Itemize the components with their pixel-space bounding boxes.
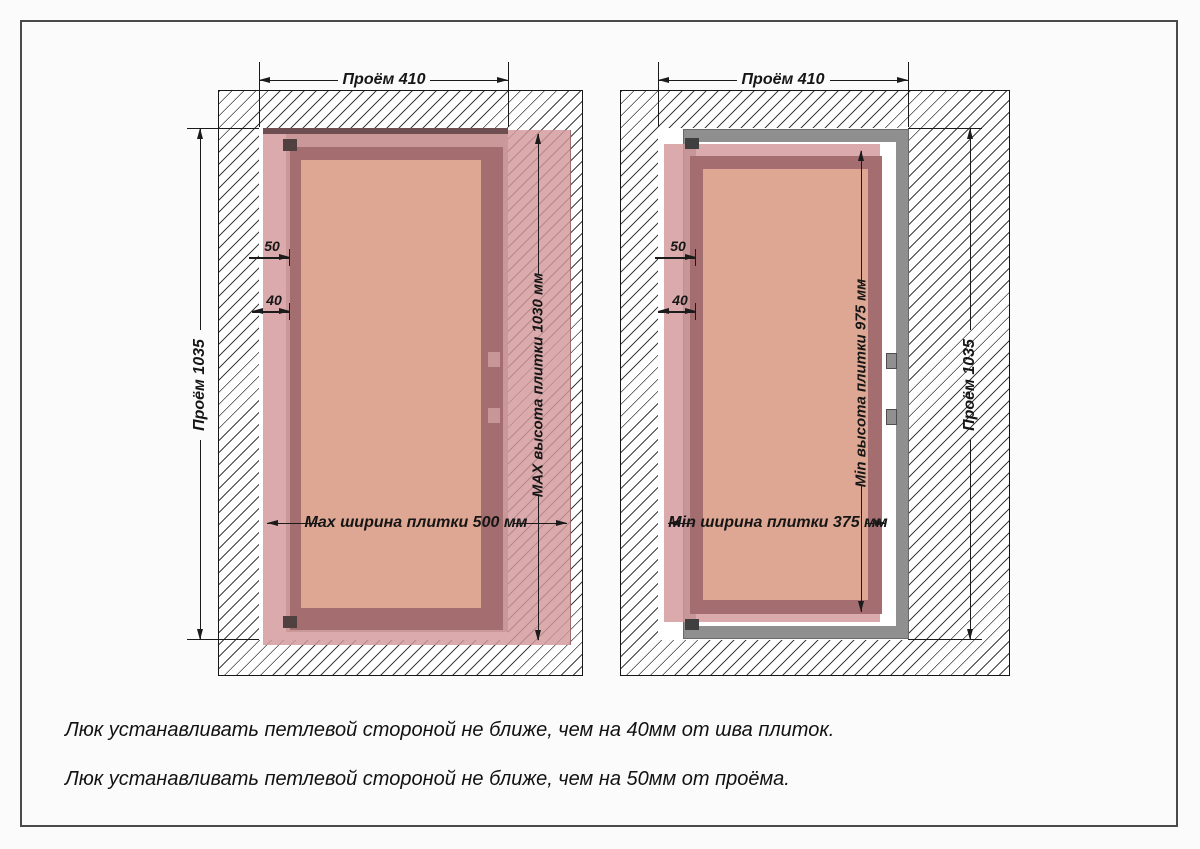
left-offset-40-label: 40	[266, 292, 282, 308]
drawing-sheet: Проём 410 Проём 1035 MAX высота плитки 1…	[0, 0, 1200, 849]
right-latch-bottom	[886, 409, 897, 425]
arrowhead-icon	[897, 77, 908, 83]
dim-line	[538, 495, 540, 640]
arrowhead-icon	[535, 630, 541, 641]
right-offset-40-label: 40	[672, 292, 688, 308]
dim-line	[259, 80, 338, 82]
arrowhead-icon	[858, 601, 864, 612]
right-hinge-top	[685, 138, 699, 149]
arrowhead-icon	[858, 150, 864, 161]
arrowhead-icon	[197, 128, 203, 139]
arrowhead-icon	[259, 77, 270, 83]
left-tile-height-label: MAX высота плитки 1030 мм	[530, 273, 547, 497]
left-latch-bottom	[488, 408, 500, 423]
ext-line	[695, 303, 697, 320]
arrowhead-icon	[658, 308, 669, 314]
ext-line	[508, 62, 510, 127]
arrowhead-icon	[535, 133, 541, 144]
arrowhead-icon	[658, 77, 669, 83]
ext-line	[908, 62, 910, 127]
left-opening-height-label: Проём 1035	[191, 339, 209, 431]
right-offset-50-label: 50	[670, 238, 686, 254]
right-tile-height-label: Min высота плитки 975 мм	[853, 279, 870, 488]
left-tile-width-label: Max ширина плитки 500 мм	[305, 514, 528, 532]
arrowhead-icon	[267, 520, 278, 526]
left-door-panel	[290, 147, 503, 630]
ext-line	[289, 303, 291, 320]
arrowhead-icon	[197, 629, 203, 640]
ext-line	[259, 62, 261, 127]
left-hinge-bottom	[283, 616, 297, 628]
dim-line	[970, 128, 972, 330]
left-offset-50-label: 50	[264, 238, 280, 254]
left-latch-top	[488, 352, 500, 367]
note-line-2: Люк устанавливать петлевой стороной не б…	[65, 768, 790, 791]
ext-line	[658, 62, 660, 127]
ext-line	[695, 249, 697, 266]
arrowhead-icon	[497, 77, 508, 83]
right-opening-height-label: Проём 1035	[961, 339, 979, 431]
arrowhead-icon	[556, 520, 567, 526]
left-opening-width-label: Проём 410	[343, 71, 426, 89]
dim-line	[658, 80, 737, 82]
right-hinge-bottom	[685, 619, 699, 630]
dim-line	[200, 440, 202, 640]
ext-line	[289, 249, 291, 266]
arrowhead-icon	[252, 308, 263, 314]
note-line-1: Люк устанавливать петлевой стороной не б…	[65, 719, 834, 742]
arrowhead-icon	[967, 128, 973, 139]
right-opening-width-label: Проём 410	[742, 71, 825, 89]
dim-line	[200, 128, 202, 330]
dim-line	[861, 151, 863, 285]
right-latch-top	[886, 353, 897, 369]
dim-line	[538, 134, 540, 275]
right-tile-width-label: Min ширина плитки 375 мм	[668, 514, 887, 532]
dim-line	[970, 440, 972, 640]
left-hinge-top	[283, 139, 297, 151]
arrowhead-icon	[967, 629, 973, 640]
dim-line	[861, 485, 863, 612]
